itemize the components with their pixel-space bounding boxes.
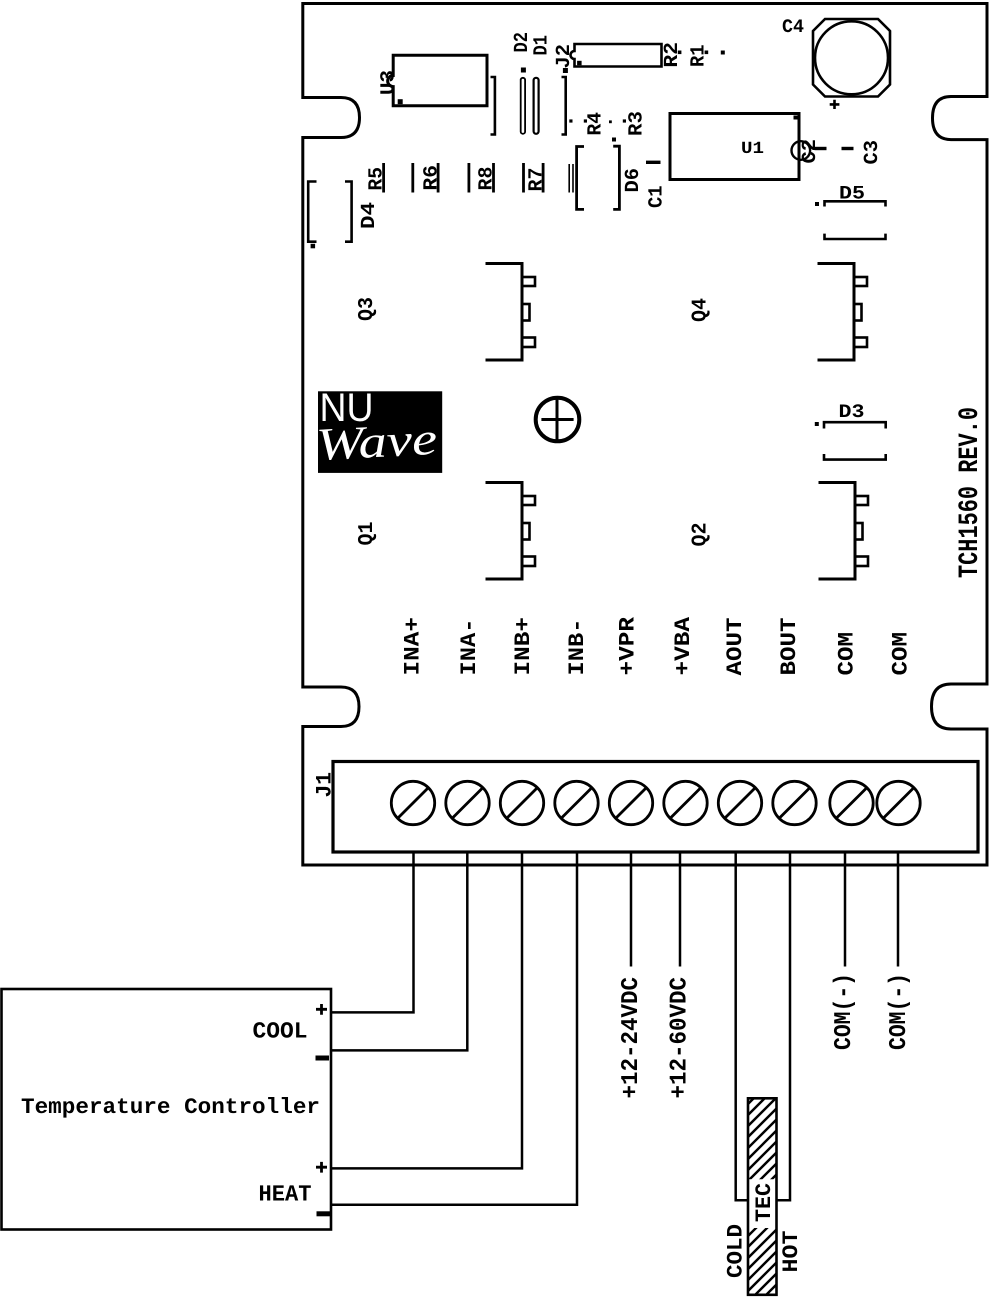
svg-text:INA-: INA- bbox=[457, 619, 482, 676]
svg-text:TCH1560 REV.0: TCH1560 REV.0 bbox=[955, 407, 986, 578]
svg-text:U3: U3 bbox=[378, 70, 401, 95]
svg-text:C4: C4 bbox=[782, 16, 804, 38]
svg-text:D3: D3 bbox=[839, 401, 865, 423]
svg-text:+12-24VDC: +12-24VDC bbox=[618, 977, 645, 1099]
svg-text:C2: C2 bbox=[799, 139, 822, 164]
svg-text:C1: C1 bbox=[646, 186, 669, 209]
svg-text:D4: D4 bbox=[358, 202, 381, 229]
svg-text:INA+: INA+ bbox=[401, 617, 426, 676]
svg-text:TEC: TEC bbox=[752, 1183, 777, 1222]
svg-text:COOL: COOL bbox=[253, 1019, 308, 1045]
svg-text:R2: R2 bbox=[661, 42, 684, 68]
svg-text:+VBA: +VBA bbox=[671, 616, 696, 675]
svg-text:COM: COM bbox=[835, 632, 860, 676]
svg-text:J1: J1 bbox=[313, 772, 338, 798]
svg-text:D6: D6 bbox=[622, 168, 645, 193]
svg-text:+12-60VDC: +12-60VDC bbox=[667, 977, 694, 1099]
svg-text:U1: U1 bbox=[741, 140, 764, 159]
svg-text:R4: R4 bbox=[585, 112, 608, 136]
svg-text:R3: R3 bbox=[626, 111, 649, 136]
svg-text:+VPR: +VPR bbox=[616, 616, 641, 675]
svg-text:R1: R1 bbox=[688, 45, 711, 68]
svg-text:Q1: Q1 bbox=[356, 522, 379, 546]
svg-text:R6: R6 bbox=[421, 165, 444, 191]
svg-text:R8: R8 bbox=[476, 167, 499, 191]
svg-text:Wave: Wave bbox=[315, 413, 439, 470]
svg-text:COM: COM bbox=[889, 632, 914, 676]
svg-text:R7: R7 bbox=[526, 168, 549, 192]
svg-text:BOUT: BOUT bbox=[777, 618, 802, 676]
svg-text:COM(-): COM(-) bbox=[886, 973, 913, 1050]
svg-text:COM(-): COM(-) bbox=[831, 973, 858, 1050]
svg-text:Q3: Q3 bbox=[356, 297, 379, 321]
svg-text:D1: D1 bbox=[531, 35, 554, 56]
svg-text:HOT: HOT bbox=[779, 1231, 804, 1273]
svg-text:COLD: COLD bbox=[724, 1224, 749, 1278]
svg-text:INB-: INB- bbox=[565, 619, 590, 676]
svg-text:Temperature Controller: Temperature Controller bbox=[21, 1095, 320, 1120]
svg-text:Q4: Q4 bbox=[690, 298, 713, 322]
svg-text:C3: C3 bbox=[861, 140, 884, 165]
svg-text:R5: R5 bbox=[366, 167, 389, 191]
svg-text:HEAT: HEAT bbox=[259, 1182, 312, 1208]
svg-text:Q2: Q2 bbox=[690, 523, 713, 547]
svg-text:J2: J2 bbox=[553, 44, 576, 69]
svg-text:AOUT: AOUT bbox=[723, 618, 748, 676]
svg-text:INB+: INB+ bbox=[511, 617, 536, 676]
